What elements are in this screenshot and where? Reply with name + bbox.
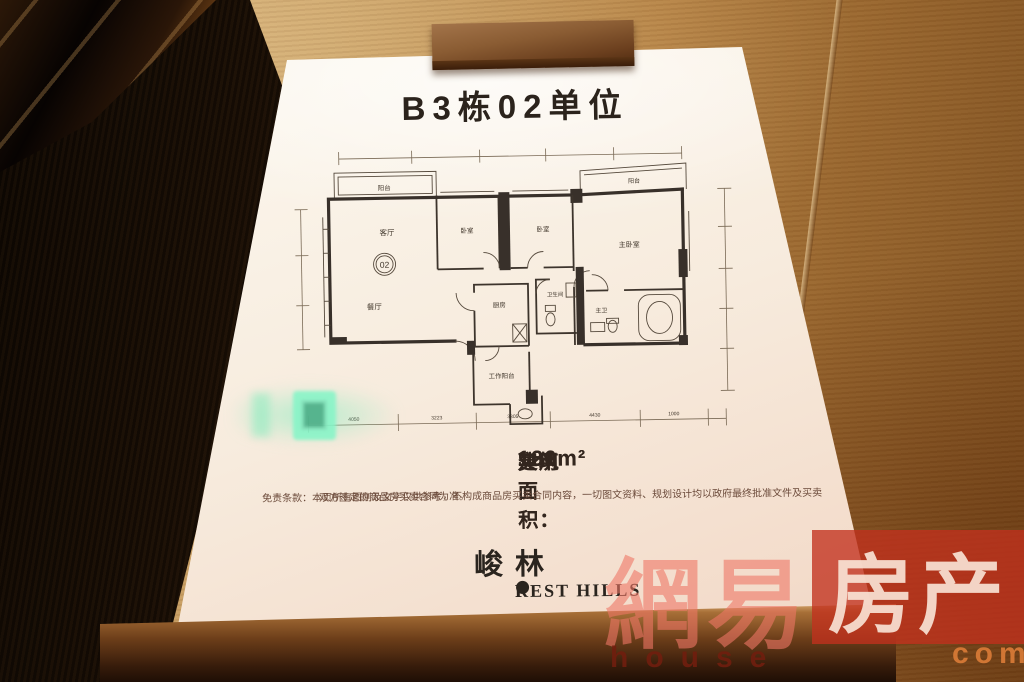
unit-number-circle: 02	[380, 260, 390, 270]
room-label-master-bathroom: 主卫	[595, 306, 607, 314]
watermark-house-property-text: 房产	[828, 525, 1008, 650]
dimension-line-left	[295, 210, 310, 350]
usable-area-value: 126m²	[518, 445, 587, 472]
watermark-red-box: 房产	[812, 530, 1024, 644]
floorplan-master-bedroom: 主卧室	[570, 187, 691, 345]
room-label-bedroom-1: 卧室	[460, 226, 474, 235]
floorplan-balcony-left: 阳台	[334, 171, 436, 199]
dim-value: 4430	[589, 413, 600, 419]
floorplan-bedroom-1: 卧室	[436, 196, 499, 269]
sign-title: B3栋02单位	[295, 76, 736, 132]
dimension-line-top	[339, 146, 682, 165]
watermark-house-text: house	[610, 641, 783, 675]
green-reflection-inner	[301, 400, 327, 430]
floorplan-bedroom-2: 卧室	[498, 191, 573, 270]
floorplan-balcony-right: 阳台	[580, 163, 686, 191]
room-label-bedroom-2: 卧室	[536, 224, 550, 233]
dim-value: 1000	[668, 411, 679, 417]
watermark-com-text: com	[952, 637, 1024, 671]
room-label-living: 客厅	[379, 227, 395, 237]
floorplan-bathroom: 卫生间	[536, 267, 585, 346]
disclaimer-line-2: 双方签定的商品房买卖合同为准。	[262, 489, 469, 507]
room-label-balcony-right: 阳台	[628, 177, 640, 185]
dim-value: 3305	[507, 414, 518, 420]
room-label-master-bedroom: 主卧室	[619, 240, 640, 249]
dim-value: 3223	[431, 415, 442, 421]
room-label-kitchen: 厨房	[493, 300, 506, 309]
green-reflection-core	[293, 391, 336, 440]
floorplan-work-balcony: 工作阳台	[467, 340, 542, 425]
bronze-clip-bracket	[432, 20, 635, 70]
green-reflection-streak	[252, 393, 270, 437]
room-label-balcony-left: 阳台	[378, 183, 391, 192]
photo-stage: B3栋02单位 4050 3223 3305 4430 1000	[0, 0, 1024, 682]
room-label-work-balcony: 工作阳台	[488, 371, 514, 380]
floorplan-master-bathroom: 主卫	[584, 294, 685, 345]
room-label-dining: 餐厅	[367, 302, 383, 311]
room-label-bathroom: 卫生间	[547, 290, 564, 298]
floorplan-kitchen: 厨房	[456, 284, 529, 347]
dimension-line-right	[717, 188, 735, 390]
